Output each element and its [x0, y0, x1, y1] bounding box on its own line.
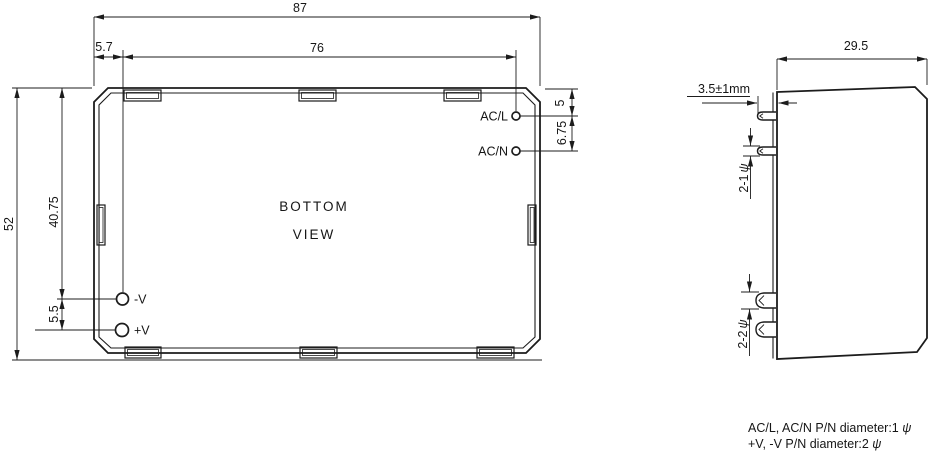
dim-pin-protrusion-label: 3.5±1mm — [698, 82, 750, 96]
note-ac-pin-diameter: AC/L, AC/N P/N diameter:1 ψ — [748, 421, 911, 435]
dim-overall-height-label: 52 — [2, 217, 16, 231]
pin-diameter-notes: AC/L, AC/N P/N diameter:1 ψ +V, -V P/N d… — [748, 421, 911, 451]
pin-pos-v-label: +V — [134, 324, 150, 338]
dim-pin-left-offset-label: 5.7 — [95, 40, 112, 54]
side-pin-pos-v — [756, 322, 776, 337]
dim-neg-pin-from-top-label: 40.75 — [47, 196, 61, 227]
pin-ac-l-label: AC/L — [480, 110, 508, 124]
dim-pin-span-width-label: 76 — [310, 41, 324, 55]
side-pin-ac-l — [758, 112, 777, 120]
dim-acl-from-top-label: 5 — [553, 99, 567, 106]
pin-ac-l — [512, 112, 520, 120]
dim-ac-pin-dia-label: 2-1ψ — [737, 163, 751, 192]
case-tab-top-left — [124, 90, 161, 101]
side-pin-neg-v — [756, 293, 776, 308]
side-view-dimensions: 29.5 3.5±1mm 2-1ψ 2-2ψ — [687, 39, 927, 356]
pin-pos-v — [116, 324, 129, 337]
pin-ac-n — [512, 147, 520, 155]
pin-neg-v — [117, 293, 129, 305]
bottom-view-outline-outer — [94, 88, 540, 353]
view-title-line1: BOTTOM — [279, 199, 349, 214]
dim-ac-pin-spacing-label: 6.75 — [555, 121, 569, 145]
pin-neg-v-label: -V — [134, 293, 147, 307]
dim-dc-pin-spacing-label: 5.5 — [47, 305, 61, 322]
case-tab-top-right — [444, 90, 481, 101]
case-tab-left — [97, 205, 105, 245]
drawing-canvas: AC/L AC/N -V +V BOTTOM VIEW 87 5.7 76 52… — [0, 0, 933, 459]
mechanical-drawing-page: AC/L AC/N -V +V BOTTOM VIEW 87 5.7 76 52… — [0, 0, 933, 459]
bottom-view: AC/L AC/N -V +V BOTTOM VIEW — [94, 88, 540, 358]
dim-depth-label: 29.5 — [844, 39, 868, 53]
side-view-outline — [777, 87, 927, 359]
pin-ac-n-label: AC/N — [478, 145, 508, 159]
bottom-view-outline-inner — [99, 93, 535, 348]
view-title-line2: VIEW — [293, 227, 336, 242]
side-view — [756, 87, 927, 359]
note-dc-pin-diameter: +V, -V P/N diameter:2 ψ — [748, 437, 881, 451]
dim-overall-width-label: 87 — [293, 1, 307, 15]
dim-dc-pin-dia-label: 2-2ψ — [736, 319, 750, 348]
case-tab-top-middle — [299, 90, 336, 101]
side-pin-ac-n — [758, 147, 777, 155]
bottom-view-dimensions: 87 5.7 76 52 40.75 5.5 5 6.75 — [2, 1, 578, 360]
